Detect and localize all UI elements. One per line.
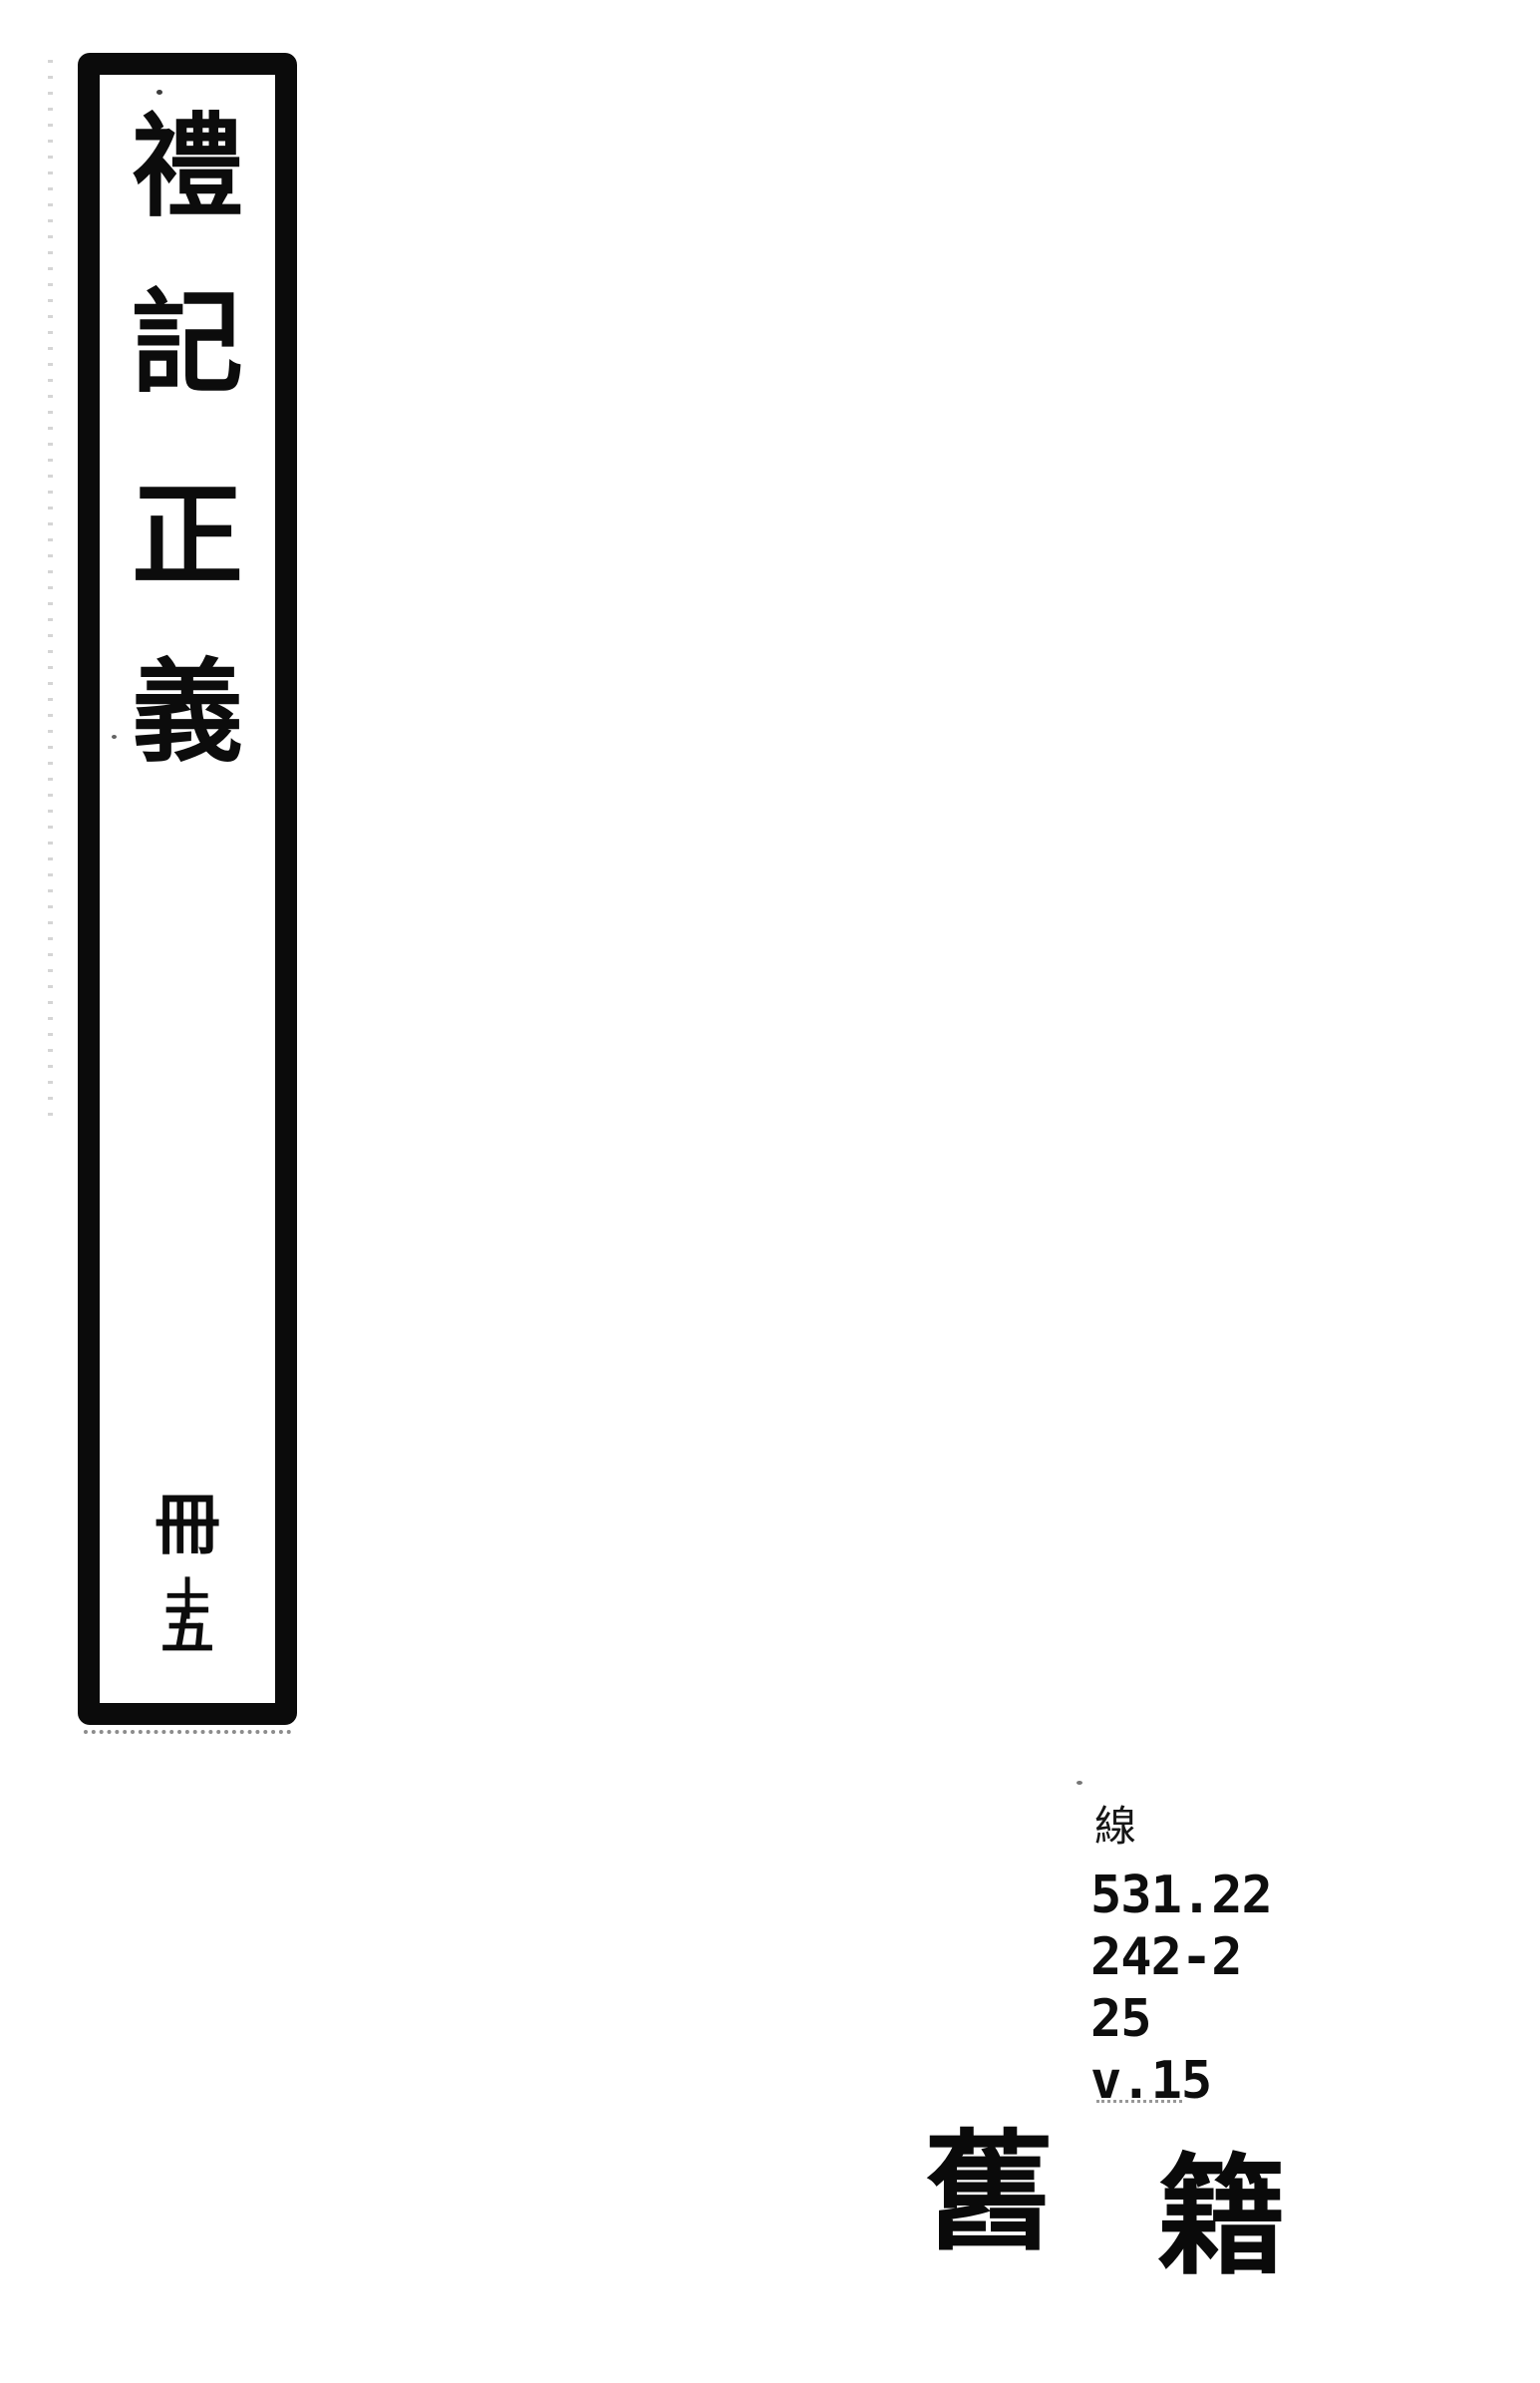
stamp-char-ji: 籍: [1157, 2154, 1287, 2283]
spine-title-char-4: 義: [100, 658, 275, 770]
call-number-label: 線 531.22 242-2 25 v.15: [1090, 1807, 1272, 2112]
spine-title-char-1: 禮: [100, 113, 275, 224]
volume-counter-char: 冊: [100, 1494, 275, 1559]
scan-edge-speckle: [48, 60, 53, 1117]
spine-title-char-2: 記: [100, 289, 275, 401]
scan-artifact-dotted-line: [84, 1730, 291, 1734]
call-number-line-1: 531.22: [1090, 1865, 1272, 1926]
scan-noise-speck: [156, 90, 162, 95]
call-number-category: 線: [1094, 1807, 1272, 1849]
call-number-line-4: v.15: [1090, 2050, 1272, 2112]
spine-label-box: 禮 記 正 義 冊 十 五: [78, 53, 297, 1725]
call-number-line-2: 242-2: [1090, 1926, 1272, 1988]
volume-number-five-char: 五: [100, 1603, 275, 1657]
scan-noise-speck: [112, 735, 117, 739]
collection-stamp: 舊 籍: [924, 2130, 1287, 2283]
call-number-line-3: 25: [1090, 1988, 1272, 2050]
scanned-book-cover: 禮 記 正 義 冊 十 五 線 531.22 242-2 25 v.15 舊 籍: [0, 0, 1540, 2383]
scan-noise-speck: [1077, 1781, 1082, 1785]
stamp-char-jiu: 舊: [924, 2130, 1054, 2283]
spine-title-char-3: 正: [100, 482, 275, 593]
